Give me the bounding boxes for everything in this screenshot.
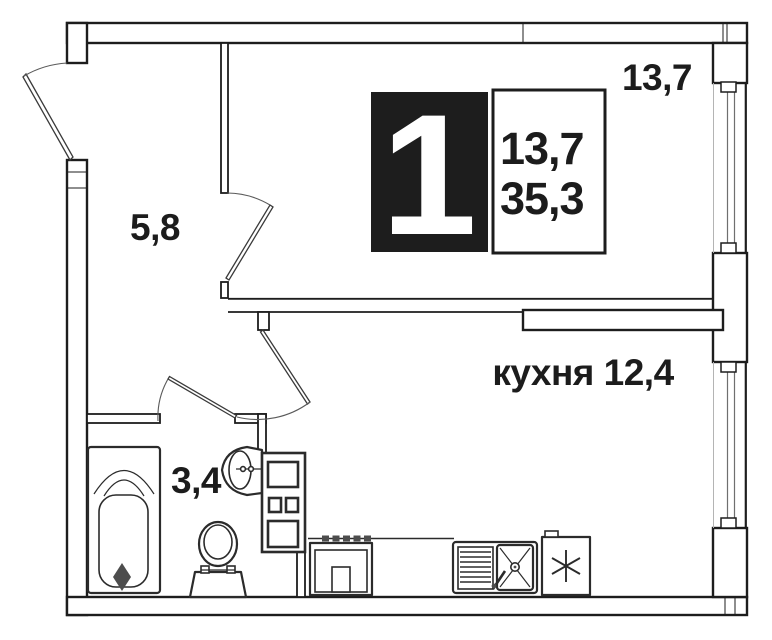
apartment-badge: 1 13,7 35,3 [371,79,605,271]
oven-door [332,567,350,592]
living-room-window [714,82,746,253]
living-room-door-leaf [226,205,273,280]
kitchen-door-leaf [261,330,311,404]
kitchen-door-jamb [258,312,269,330]
window-mullion [721,243,736,253]
kitchen-sink [453,542,537,593]
hallway-area-label: 5,8 [130,207,180,248]
refrigerator-handle [545,531,558,537]
apartment-number: 1 [381,79,477,271]
entry-door-swing-arc [24,63,67,76]
bathroom-door-leaf [168,377,237,419]
entry-door [23,63,73,160]
window-mullion [721,82,736,92]
window-mullion [721,518,736,528]
bathroom-door [158,377,237,422]
living-room-area-label: 13,7 [622,57,692,98]
window-mullion [721,362,736,372]
room-area-value: 13,7 [500,123,584,174]
stove [310,536,372,596]
kitchen-window [714,362,746,528]
kitchen-area-label: кухня 12,4 [492,352,674,393]
bathtub [88,447,160,593]
entry-door-leaf [23,74,73,160]
toilet [190,522,246,597]
living-room-door-swing-arc [228,193,271,205]
kitchen-door [237,330,310,419]
bathroom-area-label: 3,4 [171,460,222,501]
refrigerator [542,531,590,595]
living-room-door [226,193,273,280]
wash-basin [222,447,266,495]
total-area-value: 35,3 [500,173,584,224]
utility-shaft [262,453,305,552]
floor-plan: 1 13,7 35,3 13,7 5,8 3,4 кухня 12,4 [0,0,772,640]
floor-plan-drawing: 1 13,7 35,3 13,7 5,8 3,4 кухня 12,4 [0,0,772,640]
